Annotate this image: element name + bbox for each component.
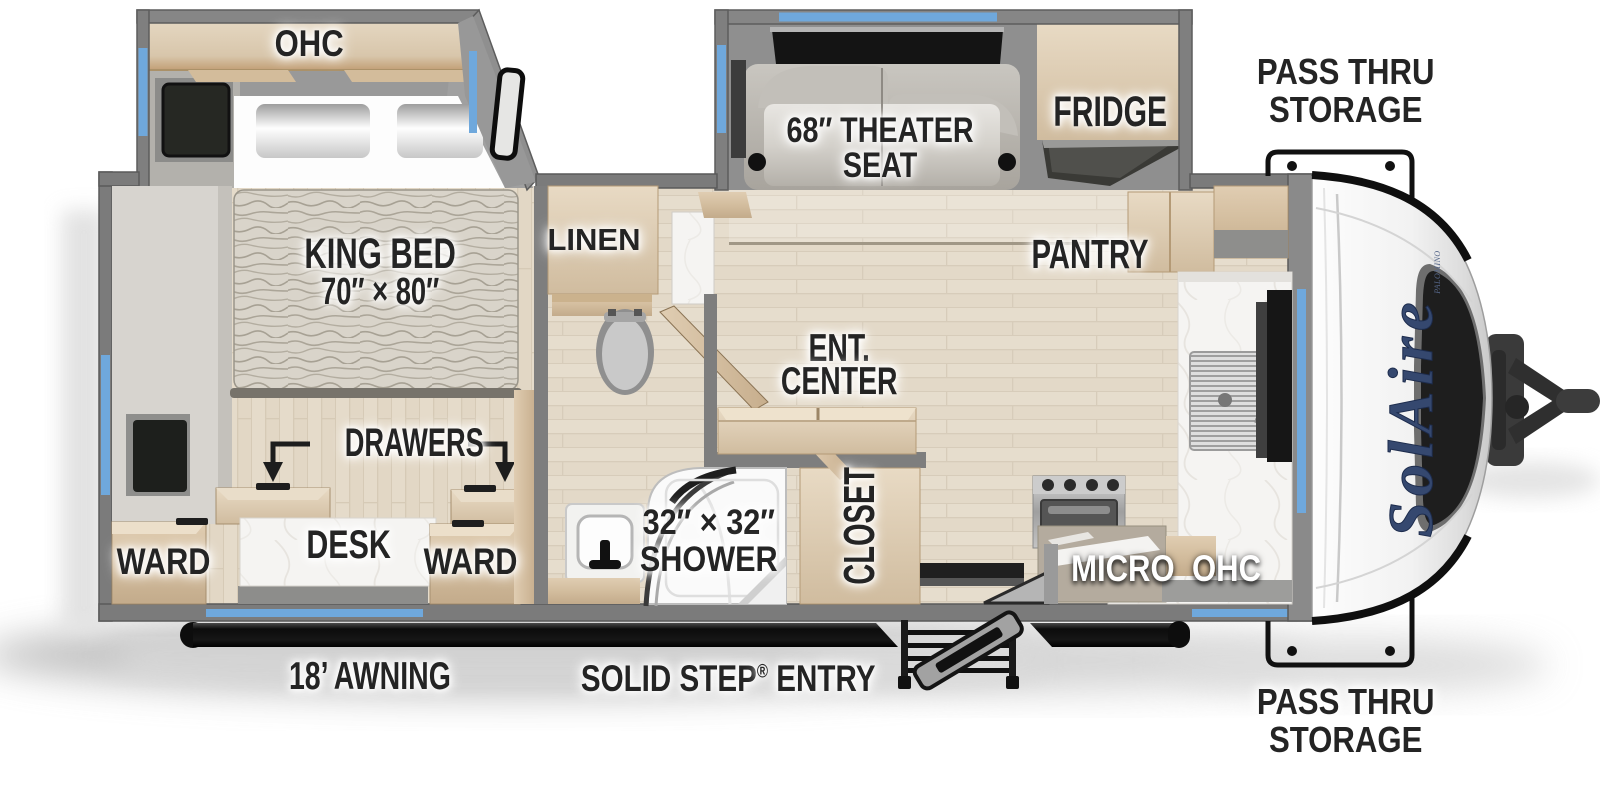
- svg-text:PALOMINO: PALOMINO: [1433, 250, 1442, 294]
- svg-text:SolAire: SolAire: [1375, 296, 1446, 537]
